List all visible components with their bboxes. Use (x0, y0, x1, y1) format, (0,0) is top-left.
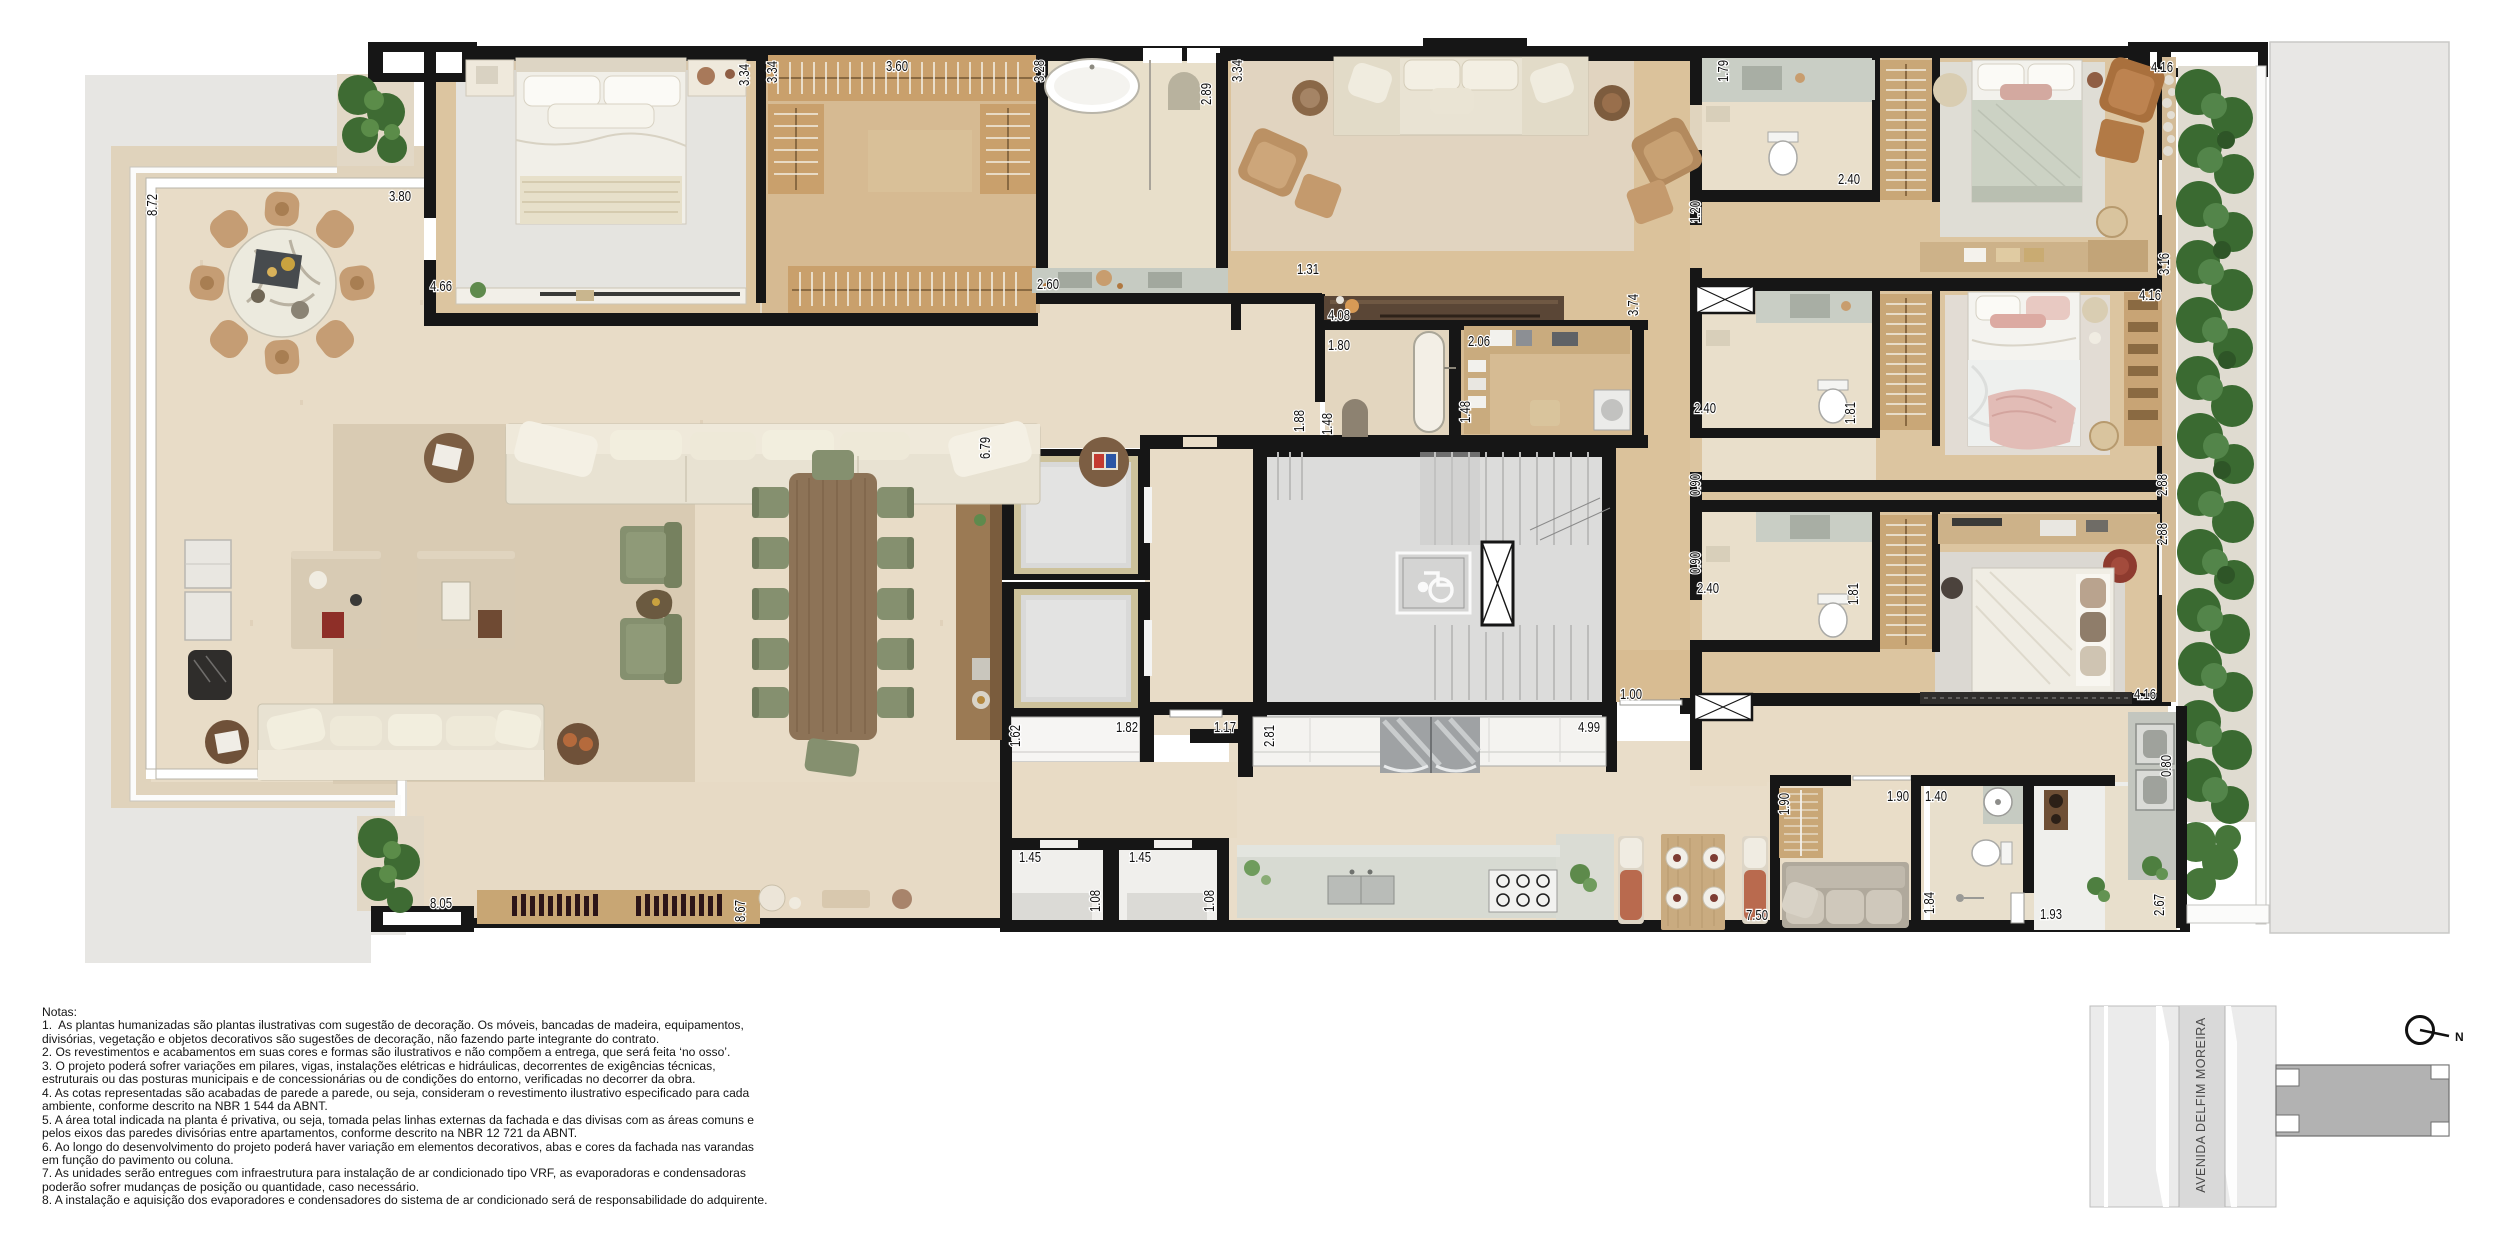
svg-text:1.45: 1.45 (1129, 849, 1151, 866)
svg-text:1.31: 1.31 (1297, 261, 1319, 278)
svg-text:2.88: 2.88 (2154, 474, 2171, 496)
svg-text:2.40: 2.40 (1697, 580, 1719, 597)
svg-text:3.28: 3.28 (1031, 60, 1048, 82)
svg-text:2.40: 2.40 (1694, 400, 1716, 417)
svg-text:1.62: 1.62 (1007, 725, 1024, 747)
svg-text:4.08: 4.08 (1328, 307, 1350, 324)
svg-text:1.48: 1.48 (1457, 401, 1474, 423)
svg-text:2.81: 2.81 (1261, 725, 1278, 747)
svg-text:8.67: 8.67 (732, 900, 749, 922)
svg-text:3.34: 3.34 (1229, 60, 1246, 82)
svg-text:1.48: 1.48 (1319, 413, 1336, 435)
svg-text:0.90: 0.90 (1687, 474, 1704, 496)
svg-text:1.93: 1.93 (2040, 906, 2062, 923)
svg-text:8.05: 8.05 (430, 895, 452, 912)
svg-text:4.16: 4.16 (2139, 287, 2161, 304)
svg-text:N: N (2455, 1030, 2464, 1044)
svg-text:2.89: 2.89 (1198, 83, 1215, 105)
svg-text:3.80: 3.80 (389, 188, 411, 205)
svg-text:2.06: 2.06 (1468, 333, 1490, 350)
svg-text:0.90: 0.90 (1687, 552, 1704, 574)
svg-text:1.20: 1.20 (1687, 201, 1704, 223)
svg-text:1.82: 1.82 (1116, 719, 1138, 736)
svg-text:AVENIDA DELFIM MOREIRA: AVENIDA DELFIM MOREIRA (2194, 1017, 2208, 1193)
svg-text:0.80: 0.80 (2158, 755, 2175, 777)
svg-text:1.88: 1.88 (1291, 410, 1308, 432)
svg-text:3.34: 3.34 (764, 61, 781, 83)
svg-text:3.74: 3.74 (1625, 294, 1642, 316)
svg-text:7.50: 7.50 (1746, 907, 1768, 924)
svg-text:3.16: 3.16 (2156, 253, 2173, 275)
svg-text:1.08: 1.08 (1201, 890, 1218, 912)
svg-text:4.66: 4.66 (430, 278, 452, 295)
svg-text:6.79: 6.79 (977, 437, 994, 459)
svg-text:2.40: 2.40 (1838, 171, 1860, 188)
svg-text:2.67: 2.67 (2151, 894, 2168, 916)
svg-text:1.81: 1.81 (1845, 583, 1862, 605)
svg-text:1.45: 1.45 (1019, 849, 1041, 866)
svg-text:1.90: 1.90 (1887, 788, 1909, 805)
svg-text:4.99: 4.99 (1578, 719, 1600, 736)
svg-text:3.60: 3.60 (886, 58, 908, 75)
svg-text:2.60: 2.60 (1037, 276, 1059, 293)
svg-text:1.40: 1.40 (1925, 788, 1947, 805)
svg-text:3.34: 3.34 (736, 64, 753, 86)
svg-text:1.84: 1.84 (1921, 892, 1938, 914)
svg-text:4.16: 4.16 (2151, 59, 2173, 76)
svg-text:1.81: 1.81 (1842, 402, 1859, 424)
svg-text:1.80: 1.80 (1328, 337, 1350, 354)
svg-text:1.90: 1.90 (1776, 793, 1793, 815)
svg-text:1.79: 1.79 (1715, 60, 1732, 82)
svg-text:4.16: 4.16 (2134, 686, 2156, 703)
svg-text:8.72: 8.72 (144, 194, 161, 216)
svg-text:1.17: 1.17 (1214, 719, 1236, 736)
svg-text:1.00: 1.00 (1620, 686, 1642, 703)
svg-text:1.08: 1.08 (1087, 890, 1104, 912)
svg-text:2.88: 2.88 (2154, 523, 2171, 545)
